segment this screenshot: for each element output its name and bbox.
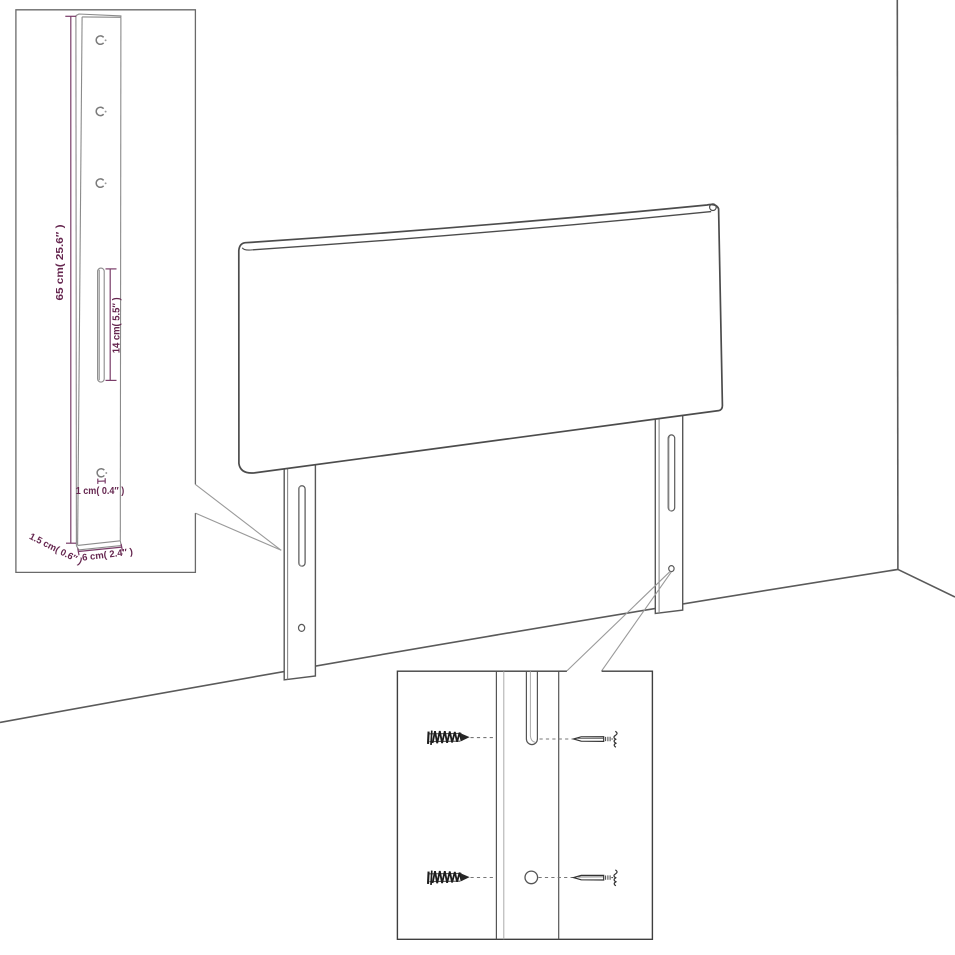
svg-text:65 cm( 25.6″ ): 65 cm( 25.6″ ) [55,225,66,301]
svg-text:14 cm( 5.5″ ): 14 cm( 5.5″ ) [111,297,122,353]
svg-text:1 cm( 0.4″ ): 1 cm( 0.4″ ) [76,486,125,497]
